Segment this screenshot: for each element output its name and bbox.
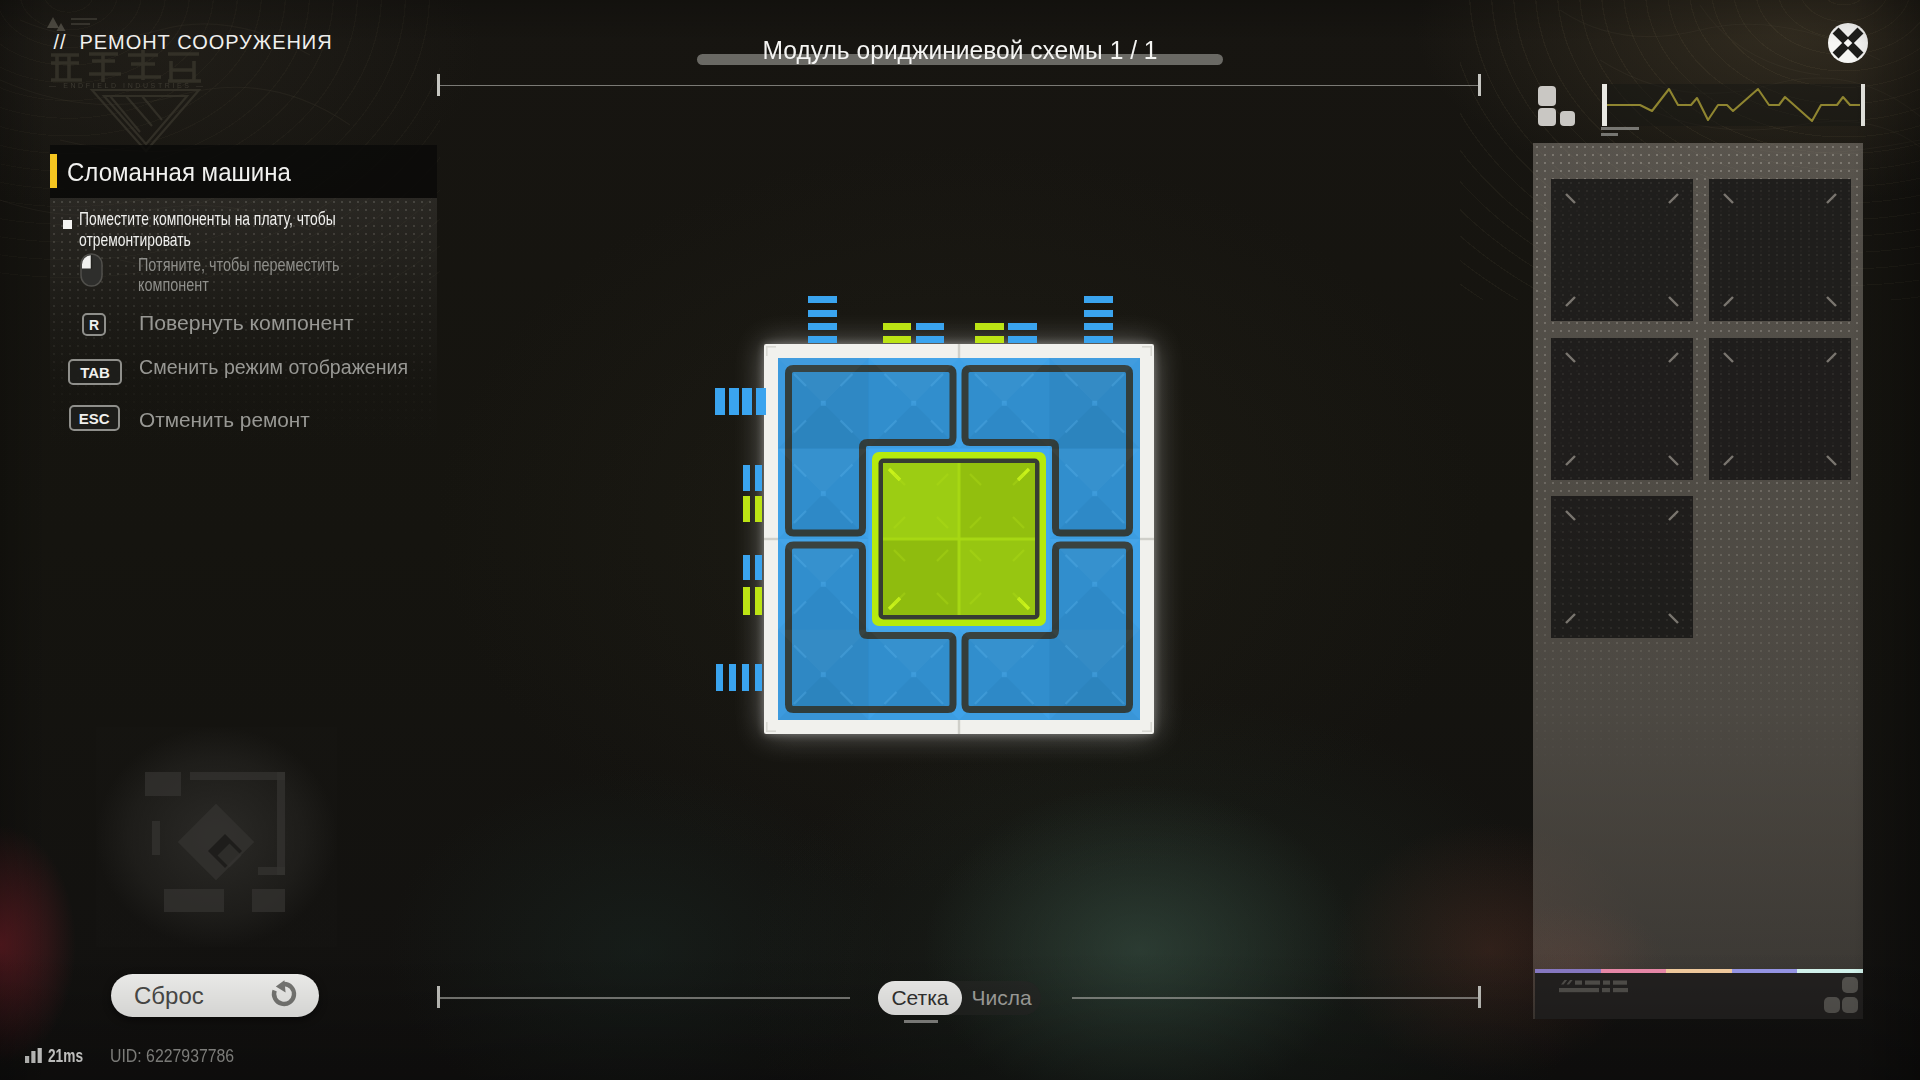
svg-text:— ENDFIELD INDUSTRIES —: — ENDFIELD INDUSTRIES — [49, 82, 206, 89]
